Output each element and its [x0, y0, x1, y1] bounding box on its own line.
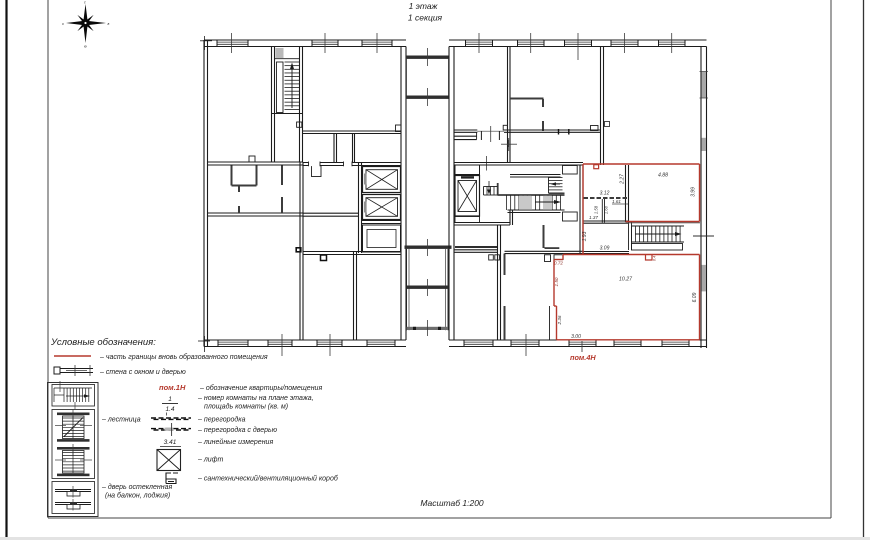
- svg-text:1.37: 1.37: [589, 215, 598, 220]
- svg-text:1 секция: 1 секция: [408, 13, 443, 23]
- svg-text:1 этаж: 1 этаж: [409, 1, 439, 11]
- svg-text:Условные обозначения:: Условные обозначения:: [50, 337, 156, 348]
- svg-text:3.99: 3.99: [691, 187, 697, 197]
- svg-text:4.88: 4.88: [658, 173, 668, 179]
- svg-text:(на балкон, лоджия): (на балкон, лоджия): [105, 492, 170, 500]
- svg-text:пом.4Н: пом.4Н: [570, 353, 596, 362]
- svg-text:Масштаб 1:200: Масштаб 1:200: [420, 498, 484, 508]
- svg-text:10.27: 10.27: [619, 277, 633, 283]
- svg-text:6.09: 6.09: [692, 292, 698, 302]
- svg-text:– номер комнаты на плане этажа: – номер комнаты на плане этажа,: [197, 395, 314, 402]
- svg-text:– стена с окном и дверью: – стена с окном и дверью: [99, 368, 187, 376]
- svg-text:0.4: 0.4: [653, 256, 657, 261]
- svg-text:3.00: 3.00: [571, 334, 581, 340]
- svg-text:– дверь остекленная: – дверь остекленная: [101, 483, 172, 491]
- svg-text:2.27: 2.27: [620, 174, 626, 185]
- svg-text:пом.1Н: пом.1Н: [159, 383, 186, 392]
- svg-text:1.61: 1.61: [612, 199, 621, 204]
- svg-text:– часть границы вновь образова: – часть границы вновь образованного поме…: [99, 353, 268, 361]
- svg-text:ю: ю: [84, 45, 87, 49]
- svg-text:0.72: 0.72: [554, 261, 563, 266]
- svg-text:2.36: 2.36: [557, 315, 562, 325]
- svg-text:1.60: 1.60: [603, 205, 608, 214]
- svg-text:– перегородка с дверью: – перегородка с дверью: [197, 426, 278, 434]
- svg-text:з: з: [61, 22, 64, 26]
- svg-text:3.41: 3.41: [164, 439, 177, 446]
- svg-text:– линейные измерения: – линейные измерения: [197, 438, 273, 446]
- svg-text:1: 1: [168, 396, 172, 403]
- svg-text:площадь комнаты (кв. м): площадь комнаты (кв. м): [204, 403, 288, 411]
- svg-text:– перегородка: – перегородка: [197, 416, 246, 424]
- svg-text:– обозначение квартиры/помещен: – обозначение квартиры/помещения: [199, 384, 322, 392]
- svg-text:– лифт: – лифт: [197, 457, 224, 464]
- svg-text:– сантехнический/вентиляционны: – сантехнический/вентиляционный короб: [197, 475, 339, 483]
- svg-text:1.4: 1.4: [165, 406, 174, 413]
- svg-text:в: в: [108, 22, 110, 26]
- svg-text:1.93: 1.93: [582, 231, 588, 241]
- svg-text:3.09: 3.09: [600, 246, 610, 252]
- svg-text:с: с: [84, 1, 86, 5]
- svg-text:3.12: 3.12: [600, 191, 610, 197]
- svg-text:– лестница: – лестница: [101, 417, 141, 424]
- svg-text:1.58: 1.58: [594, 205, 599, 214]
- svg-text:1.50: 1.50: [554, 277, 559, 286]
